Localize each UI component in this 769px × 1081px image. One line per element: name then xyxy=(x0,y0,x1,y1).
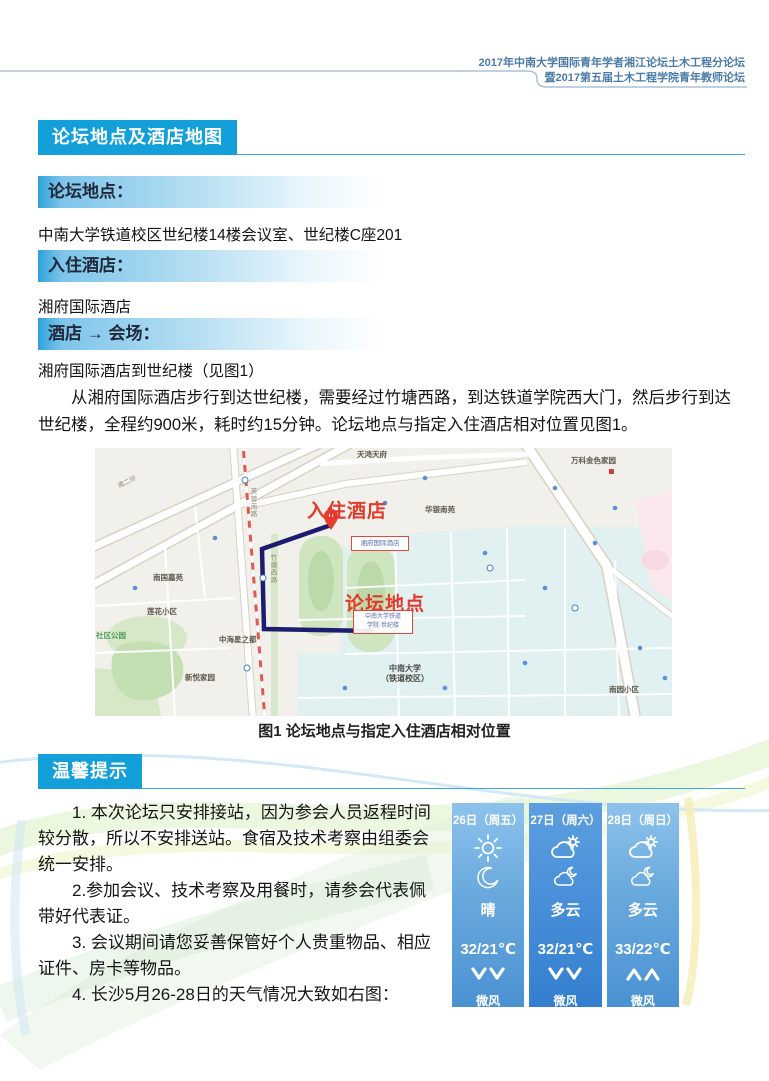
map-hotel-callout: 湘府国际酒店 xyxy=(351,536,409,551)
route-map-figure: 入住酒店 论坛地点 湘府国际酒店 中南大学铁道 学院·世纪楼 中南大学 （铁道校… xyxy=(95,448,672,716)
map-place-label: 新悦家园 xyxy=(185,672,215,683)
tip-item-2: 2.参加会议、技术考察及用餐时，请参会代表佩带好代表证。 xyxy=(38,878,442,930)
tips-list: 1. 本次论坛只安排接站，因为参会人员返程时间较分散，所以不安排送站。食宿及技术… xyxy=(38,800,442,1008)
sun-icon xyxy=(452,833,524,863)
map-place-label: 中海星之都 xyxy=(219,634,257,645)
cloud-sun-icon xyxy=(607,833,679,863)
figure-caption: 图1 论坛地点与指定入住酒店相对位置 xyxy=(12,720,757,741)
weather-day-header: 26日（周五） xyxy=(452,812,524,828)
weather-temperature: 32/21℃ xyxy=(452,940,524,958)
tip-item-1: 1. 本次论坛只安排接站，因为参会人员返程时间较分散，所以不安排送站。食宿及技术… xyxy=(38,800,442,878)
cloud-sun-icon xyxy=(529,833,601,863)
cloud-moon-icon xyxy=(529,865,601,890)
weather-card-sunday: 28日（周日） 多云 33/22℃ 微风 xyxy=(607,803,679,1007)
weather-condition: 晴 xyxy=(452,899,524,920)
section-title-tips: 温馨提示 xyxy=(38,754,142,789)
weather-wind: 微风 xyxy=(529,992,601,1009)
map-place-label: 万科金色家园 xyxy=(571,455,616,466)
wind-direction-down-icon xyxy=(529,966,601,983)
map-forum-callout-line2: 学院·世纪楼 xyxy=(354,622,412,631)
map-road-label: 竹塘西路 xyxy=(267,554,277,584)
hotel-to-venue-text: 湘府国际酒店到世纪楼（见图1） xyxy=(38,359,264,381)
map-hotel-label: 入住酒店 xyxy=(307,496,387,523)
forum-location-text: 中南大学铁道校区世纪楼14楼会议室、世纪楼C座201 xyxy=(38,223,402,245)
weather-card-saturday: 27日（周六） 多云 32/21℃ 微风 xyxy=(529,803,601,1007)
map-campus-label-line1: 中南大学 xyxy=(381,664,429,674)
map-campus-label: 中南大学 （铁道校区） xyxy=(381,664,429,684)
map-place-label: 南园小区 xyxy=(609,684,639,695)
map-forum-callout: 中南大学铁道 学院·世纪楼 xyxy=(353,610,413,634)
hotel-text: 湘府国际酒店 xyxy=(38,295,131,317)
running-head-rule xyxy=(0,0,769,100)
cloud-moon-icon xyxy=(607,865,679,890)
section-title-rule xyxy=(38,788,745,789)
tip-item-4: 4. 长沙5月26-28日的天气情况大致如右图： xyxy=(38,982,442,1008)
weather-temperature: 32/21℃ xyxy=(529,940,601,958)
tip-item-3: 3. 会议期间请您妥善保管好个人贵重物品、相应证件、房卡等物品。 xyxy=(38,930,442,982)
subheading-forum-location: 论坛地点： xyxy=(38,176,383,208)
weather-condition: 多云 xyxy=(529,899,601,920)
weather-forecast-widget: 26日（周五） 晴 32/21℃ 微风 27日（周六） xyxy=(452,803,679,1007)
weather-condition: 多云 xyxy=(607,899,679,920)
page: { "page_header": { "line1": "2017年中南大学国际… xyxy=(0,0,769,1081)
map-place-label: 天鸿天府 xyxy=(357,449,387,460)
subheading-hotel-to-venue: 酒店 → 会场： xyxy=(38,318,383,350)
map-road-label: 芙蓉南路 xyxy=(247,488,257,518)
weather-wind: 微风 xyxy=(452,992,524,1009)
subheading-hotel: 入住酒店： xyxy=(38,250,383,282)
weather-card-friday: 26日（周五） 晴 32/21℃ 微风 xyxy=(452,803,524,1007)
section-title-map: 论坛地点及酒店地图 xyxy=(38,120,237,155)
weather-wind: 微风 xyxy=(607,992,679,1009)
map-place-label: 华银南苑 xyxy=(425,504,455,515)
weather-day-header: 27日（周六） xyxy=(529,812,601,828)
moon-icon xyxy=(452,865,524,890)
map-forum-callout-line1: 中南大学铁道 xyxy=(354,613,412,622)
walking-directions-paragraph: 从湘府国际酒店步行到达世纪楼，需要经过竹塘西路，到达铁道学院西大门，然后步行到达… xyxy=(38,385,738,439)
map-park-label: 社区公园 xyxy=(96,630,126,641)
map-campus-label-line2: （铁道校区） xyxy=(381,674,429,684)
wind-direction-up-icon xyxy=(607,966,679,983)
wind-direction-down-icon xyxy=(452,966,524,983)
weather-temperature: 33/22℃ xyxy=(607,940,679,958)
weather-day-header: 28日（周日） xyxy=(607,812,679,828)
map-place-label: 莲花小区 xyxy=(147,606,177,617)
map-place-label: 南国嘉苑 xyxy=(153,572,183,583)
